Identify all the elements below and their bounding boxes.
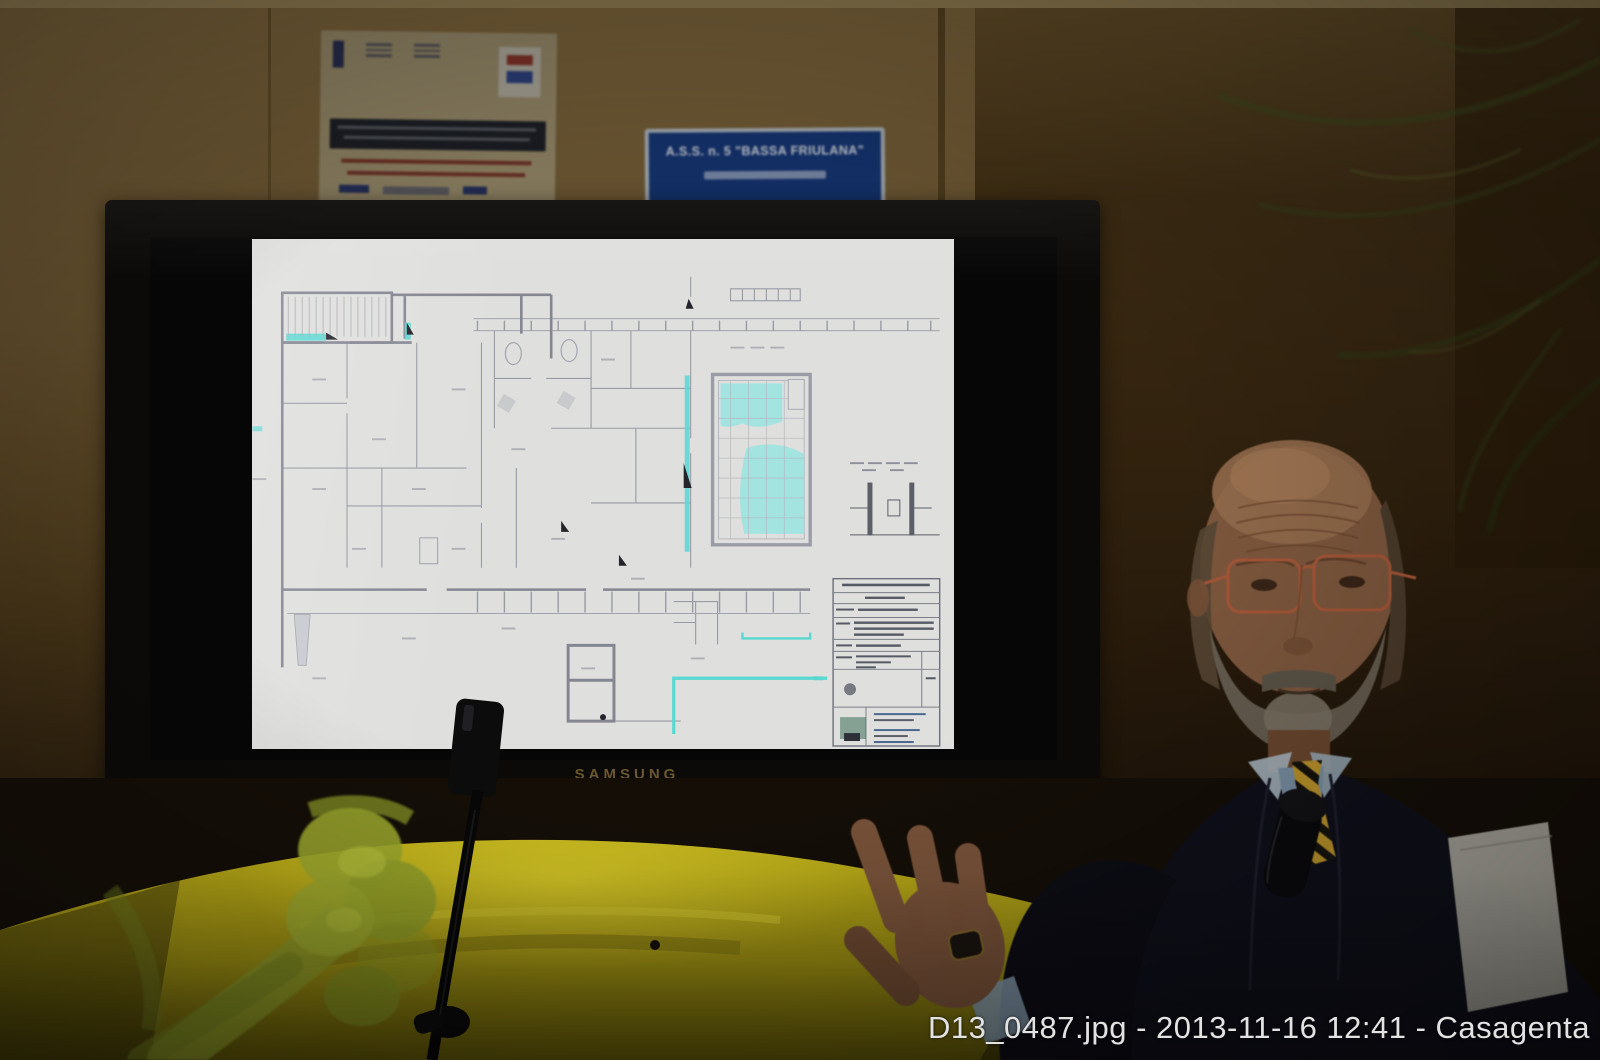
poster-logo bbox=[414, 44, 440, 58]
presenter bbox=[800, 380, 1600, 1060]
plan-annotations bbox=[252, 347, 784, 680]
plan-courtyard bbox=[713, 374, 811, 544]
poster-text-line bbox=[347, 171, 525, 177]
poster-logo bbox=[333, 41, 344, 68]
poster-text-line bbox=[341, 159, 531, 166]
eye-right bbox=[1339, 576, 1365, 588]
paper-sheet bbox=[1448, 822, 1568, 1012]
poster-headline-band bbox=[330, 118, 546, 151]
eye-left bbox=[1251, 579, 1277, 591]
poster-footer bbox=[339, 185, 535, 197]
plan-walls-thick bbox=[282, 293, 810, 721]
plan-cyan-highlights bbox=[252, 323, 827, 734]
head bbox=[1187, 440, 1416, 772]
microphone-stand bbox=[380, 770, 540, 1060]
plan-markers bbox=[326, 299, 694, 720]
ear-left bbox=[1187, 579, 1209, 617]
plan-fixtures bbox=[288, 297, 577, 666]
wall-poster bbox=[319, 30, 557, 205]
poster-logo bbox=[366, 43, 392, 57]
photo-conference-scene: A.S.S. n. 5 "BASSA FRIULANA" bbox=[0, 0, 1600, 1060]
ring bbox=[948, 929, 985, 961]
photo-caption: D13_0487.jpg - 2013-11-16 12:41 - Casage… bbox=[928, 1010, 1590, 1046]
sign-subtitle-blurred bbox=[704, 171, 826, 180]
poster-logo-card bbox=[498, 47, 541, 98]
sign-title: A.S.S. n. 5 "BASSA FRIULANA" bbox=[657, 143, 873, 159]
